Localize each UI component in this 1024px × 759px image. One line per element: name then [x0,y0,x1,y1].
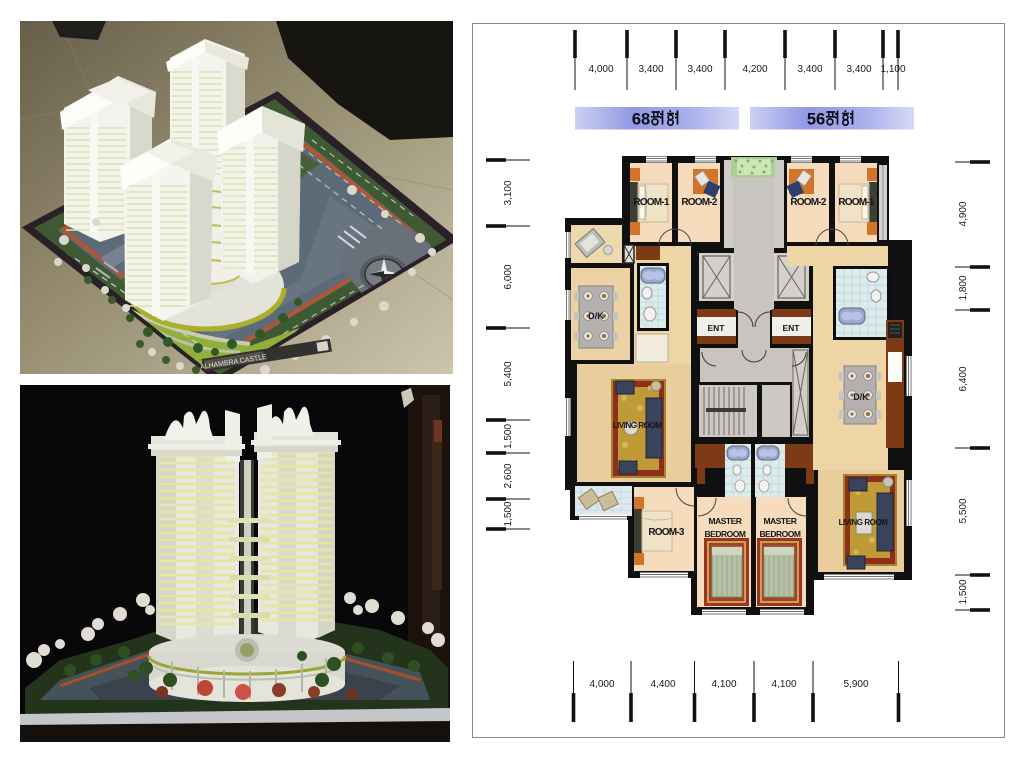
svg-text:ROOM-3: ROOM-3 [648,527,684,538]
svg-text:LIVING ROOM: LIVING ROOM [839,518,889,527]
svg-text:ROOM-2: ROOM-2 [681,197,717,208]
svg-text:3,400: 3,400 [846,64,871,75]
svg-text:ENT: ENT [783,323,801,333]
svg-text:4,100: 4,100 [771,679,796,690]
svg-text:MASTER: MASTER [764,516,797,526]
svg-text:3,400: 3,400 [638,64,663,75]
svg-text:3,400: 3,400 [797,64,822,75]
svg-text:4,900: 4,900 [958,201,969,226]
svg-text:68: 68 [632,111,650,129]
svg-text:LIVING ROOM: LIVING ROOM [613,421,663,430]
svg-text:2,600: 2,600 [503,463,514,488]
svg-text:3,400: 3,400 [687,64,712,75]
svg-text:ROOM-2: ROOM-2 [790,197,826,208]
svg-text:1,500: 1,500 [503,424,514,449]
svg-text:1,800: 1,800 [958,275,969,300]
svg-text:6,000: 6,000 [503,264,514,289]
svg-text:ROOM-1: ROOM-1 [633,197,669,208]
svg-text:MASTER: MASTER [709,516,742,526]
svg-text:4,100: 4,100 [711,679,736,690]
svg-text:ROOM-1: ROOM-1 [838,197,874,208]
svg-text:BEDROOM: BEDROOM [705,529,746,539]
svg-text:BEDROOM: BEDROOM [760,529,801,539]
svg-text:5,500: 5,500 [958,498,969,523]
svg-text:3,100: 3,100 [503,180,514,205]
svg-text:56: 56 [807,111,825,129]
svg-text:4,000: 4,000 [588,64,613,75]
svg-text:4,000: 4,000 [589,679,614,690]
svg-text:D/K: D/K [853,392,869,402]
svg-text:D/K: D/K [588,311,604,321]
svg-text:5,900: 5,900 [843,679,868,690]
svg-text:4,200: 4,200 [742,64,767,75]
svg-text:1,100: 1,100 [880,64,905,75]
svg-text:1,500: 1,500 [958,579,969,604]
svg-text:1,500: 1,500 [503,501,514,526]
svg-text:ENT: ENT [708,323,726,333]
svg-text:5,400: 5,400 [503,361,514,386]
svg-text:6,400: 6,400 [958,366,969,391]
svg-text:4,400: 4,400 [650,679,675,690]
